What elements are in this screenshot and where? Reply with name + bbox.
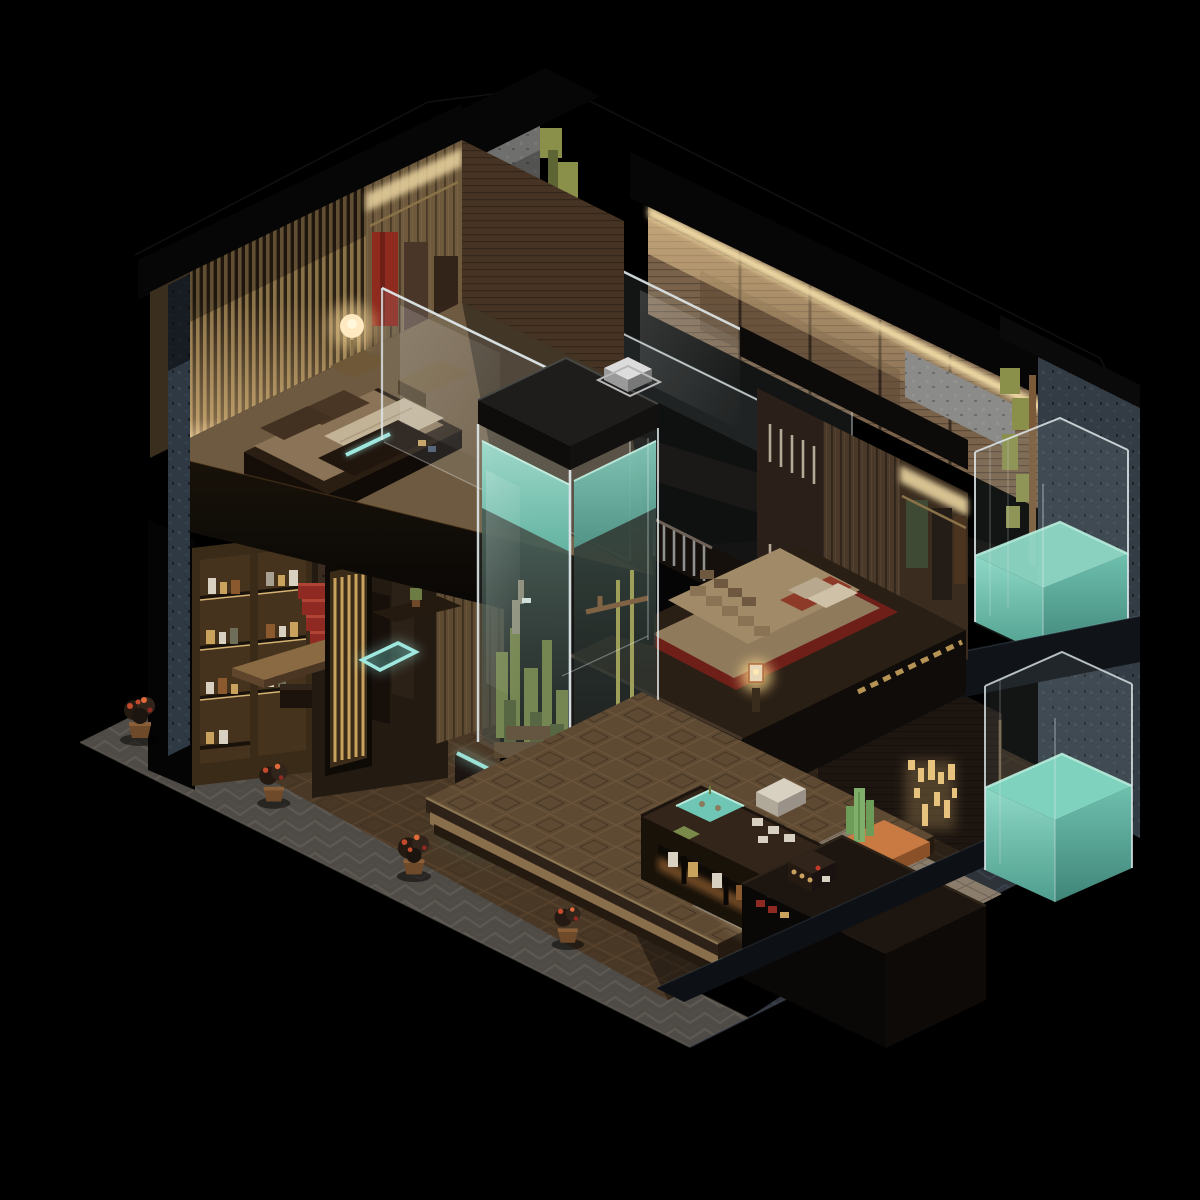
gold-wall-light xyxy=(905,760,957,830)
stool xyxy=(280,690,312,708)
shelf-plant xyxy=(410,588,422,600)
slatted-door xyxy=(325,556,372,776)
garment-green xyxy=(906,500,928,568)
left-outer-wall xyxy=(168,274,190,756)
voxel-isometric-scene xyxy=(0,0,1200,1200)
lower-bath-tank xyxy=(985,652,1132,902)
garment-dark xyxy=(932,508,952,600)
